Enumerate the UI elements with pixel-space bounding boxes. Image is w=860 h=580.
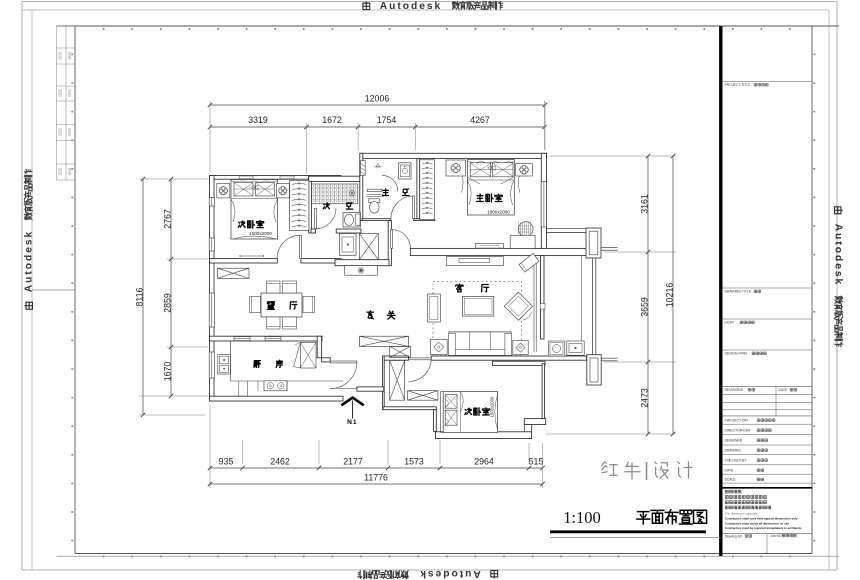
svg-text:11776: 11776	[364, 473, 388, 483]
svg-text:1:100: 1:100	[563, 508, 601, 527]
svg-text:Contractors must check all dim: Contractors must check all dimensions on…	[725, 521, 789, 525]
svg-text:2767: 2767	[163, 209, 173, 229]
svg-text:1672: 1672	[322, 115, 342, 125]
svg-text:2859: 2859	[163, 293, 173, 313]
svg-text:DESIGN FIRM: DESIGN FIRM	[725, 352, 747, 356]
svg-text:3659: 3659	[640, 297, 650, 317]
svg-text:2473: 2473	[640, 388, 650, 408]
svg-text:DRAWING-TITLE: DRAWING-TITLE	[725, 290, 752, 294]
svg-text:4267: 4267	[470, 115, 490, 125]
svg-text:1573: 1573	[404, 457, 424, 467]
svg-text:SCALE: SCALE	[725, 478, 737, 482]
svg-text:Contractors shall work field-f: Contractors shall work field-figured dim…	[725, 517, 798, 521]
svg-text:1500x2000: 1500x2000	[249, 231, 272, 236]
svg-text:DIRECTOR-DER: DIRECTOR-DER	[725, 429, 751, 433]
svg-text:Autodesk: Autodesk	[380, 1, 442, 12]
svg-text:3319: 3319	[248, 115, 268, 125]
svg-text:2177: 2177	[343, 457, 363, 467]
svg-text:LIENT: LIENT	[725, 321, 735, 325]
svg-text:1670: 1670	[163, 362, 173, 382]
svg-text:DRAWING: DRAWING	[725, 449, 742, 453]
svg-text:3161: 3161	[640, 194, 650, 214]
svg-text:1800x2000: 1800x2000	[487, 210, 510, 215]
svg-text:8116: 8116	[135, 287, 145, 306]
svg-text:PWOJECT-DIR: PWOJECT-DIR	[725, 419, 749, 423]
svg-text:CHECKED BY: CHECKED BY	[725, 459, 748, 463]
svg-text:REVISIONS: REVISIONS	[725, 388, 744, 392]
svg-text:Contractors must be reported i: Contractors must be reported immediately…	[725, 526, 802, 530]
svg-text:2964: 2964	[474, 457, 494, 467]
svg-text:12006: 12006	[365, 94, 390, 104]
svg-text:Autodesk: Autodesk	[832, 224, 843, 286]
svg-text:Autodesk: Autodesk	[24, 230, 35, 292]
svg-text:The drawing is copyright: The drawing is copyright	[725, 512, 758, 516]
svg-text:10216: 10216	[665, 283, 675, 308]
svg-text:Drawing NO: Drawing NO	[725, 535, 743, 539]
svg-text:DESIGNER: DESIGNER	[725, 439, 743, 443]
svg-text:Job NO: Job NO	[771, 534, 782, 538]
svg-text:1500x2000: 1500x2000	[489, 396, 494, 417]
svg-text:1754: 1754	[377, 115, 397, 125]
svg-text:N1: N1	[347, 419, 357, 426]
svg-text:DATE: DATE	[779, 388, 789, 392]
svg-text:515: 515	[529, 457, 544, 467]
svg-text:PROJECT-TITLE: PROJECT-TITLE	[725, 83, 752, 87]
svg-text:2462: 2462	[270, 457, 290, 467]
svg-text:DATE: DATE	[725, 469, 735, 473]
svg-text:Autodesk: Autodesk	[418, 568, 480, 579]
svg-text:935: 935	[219, 457, 234, 467]
